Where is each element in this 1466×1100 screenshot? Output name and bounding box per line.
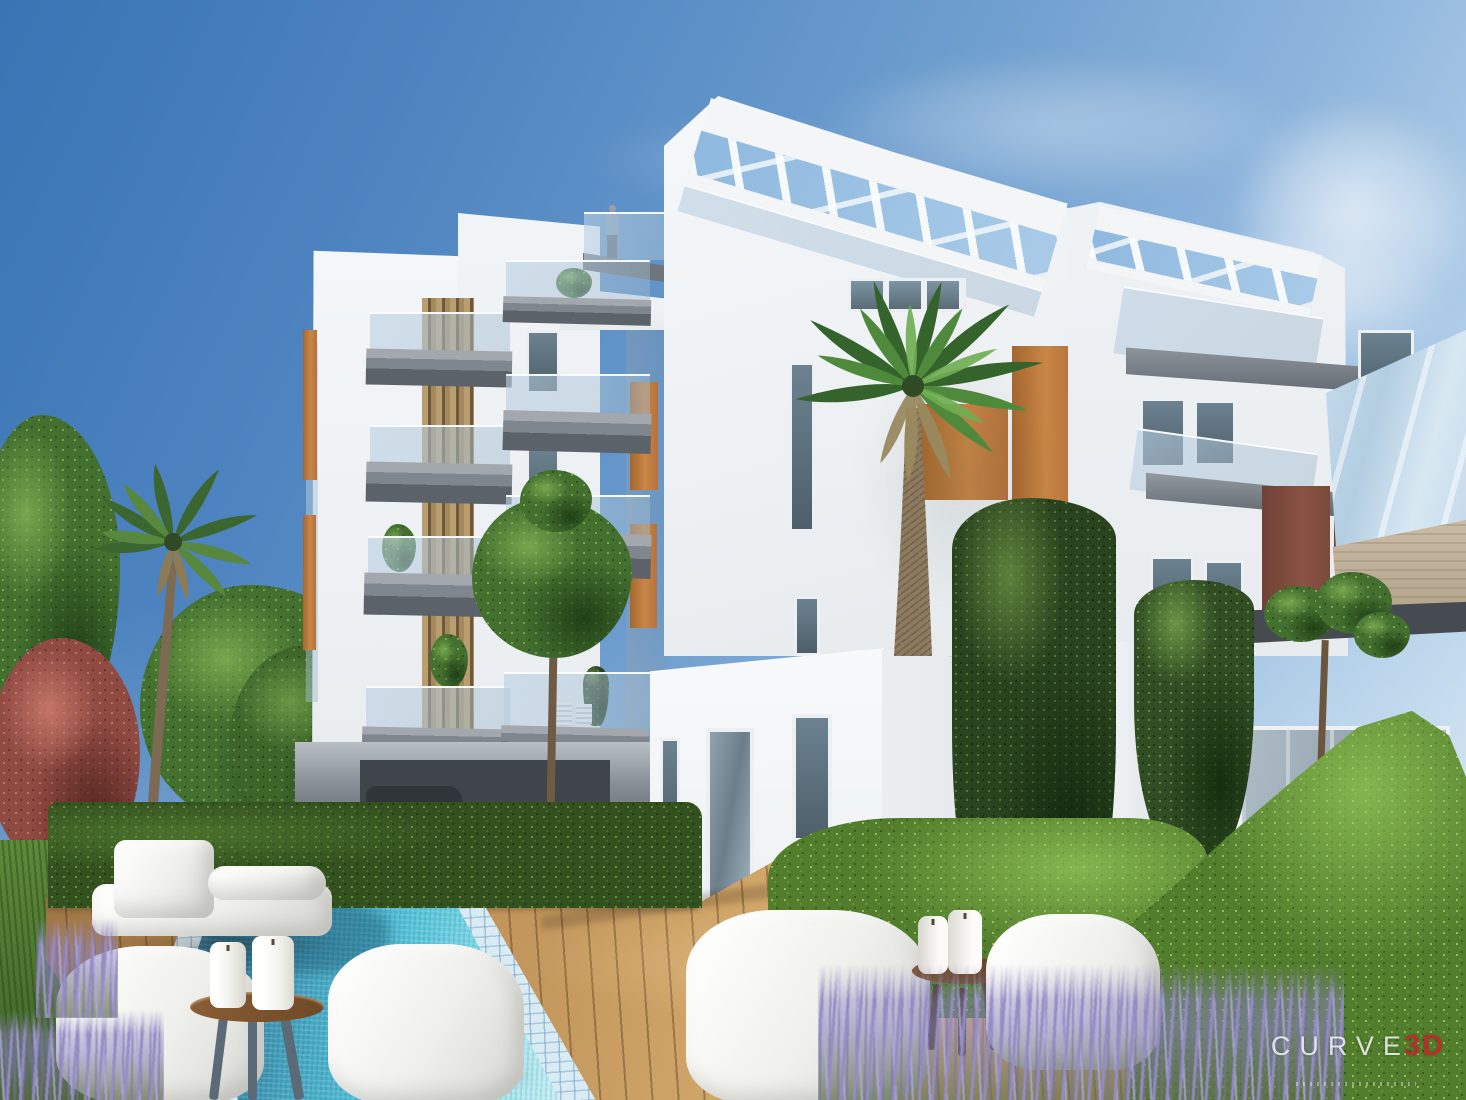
balcony-slab	[366, 348, 513, 387]
watermark: CURVE3D	[1230, 1030, 1445, 1076]
daybed-backrest	[114, 840, 214, 918]
balcony-glass	[506, 260, 650, 300]
lavender-clump	[0, 1010, 164, 1100]
person-head	[609, 205, 616, 212]
beanbag-chair	[328, 944, 524, 1100]
balcony-slab	[366, 461, 513, 504]
balcony-slab	[503, 296, 652, 326]
balcony-glass	[506, 374, 650, 414]
candle	[252, 936, 294, 1010]
watermark-suffix: 3D	[1404, 1030, 1445, 1063]
balcony-glass	[366, 686, 510, 730]
daybed-pillow	[208, 866, 326, 900]
courtyard-tree-foliage	[520, 470, 592, 532]
balcony-glass	[370, 312, 510, 352]
watermark-tagline-dots	[1296, 1082, 1416, 1086]
terracotta-panel	[303, 330, 317, 480]
balcony-plant	[430, 634, 468, 688]
stool-leg	[248, 1020, 257, 1100]
balcony-glass	[504, 672, 650, 729]
balcony-glass	[370, 425, 510, 465]
lavender-clump	[36, 918, 118, 1018]
architectural-rendering: CURVE3D	[0, 0, 1466, 1100]
watermark-brand: CURVE	[1271, 1031, 1410, 1062]
balcony-slab	[503, 410, 652, 454]
candle	[210, 942, 246, 1008]
terracotta-panel	[303, 515, 316, 650]
annex-window	[792, 714, 832, 842]
small-tree-foliage	[1354, 612, 1410, 658]
